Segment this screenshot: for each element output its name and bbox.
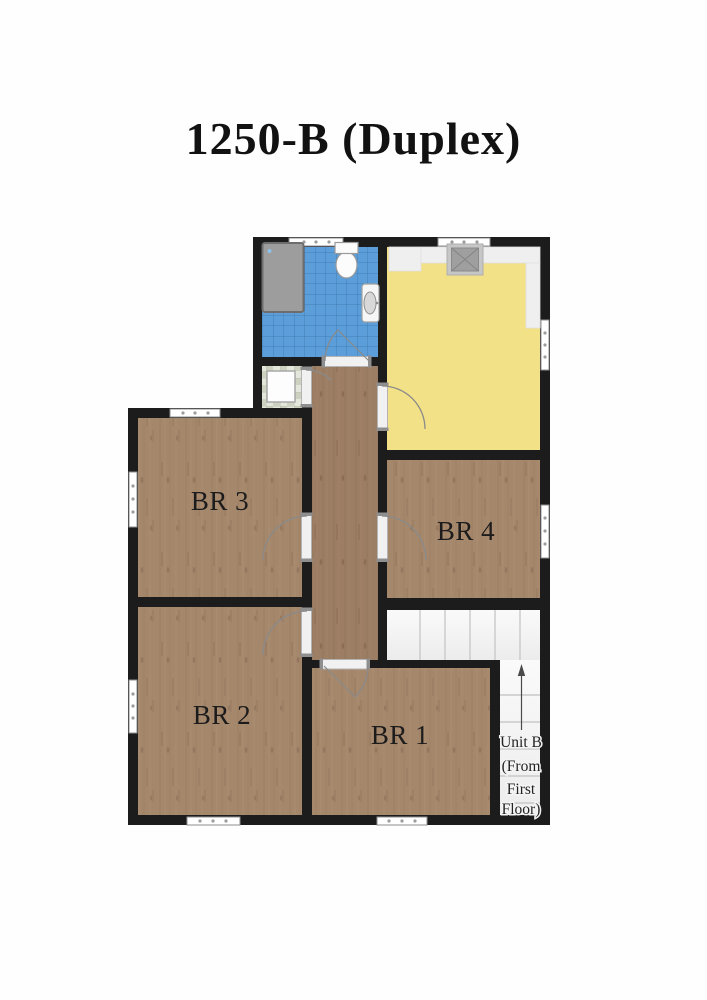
window-br1-bottom (377, 817, 427, 825)
wall-br4-bottom (378, 598, 550, 610)
window-br3-top (170, 409, 220, 417)
window-br3-left (129, 472, 137, 527)
stairs-note-line-4: Floor) (502, 801, 541, 818)
wall-hall-left (302, 366, 312, 815)
counter-left (389, 247, 421, 271)
stairs-note-line-1: Unit B (500, 734, 542, 751)
stairs-note-line-2: (From (502, 758, 541, 775)
washer (267, 371, 295, 402)
hallway-floor (312, 366, 378, 660)
window-br4-right (541, 505, 549, 558)
br3-label: BR 3 (191, 486, 249, 516)
wall-upper-left (253, 237, 262, 418)
br2-label: BR 2 (193, 700, 251, 730)
br4-label: BR 4 (437, 516, 495, 546)
br1-label: BR 1 (371, 720, 429, 750)
wall-br1-right (490, 660, 500, 825)
toilet (335, 243, 358, 279)
wall-kitchen-bottom (378, 450, 550, 460)
stairs-upper-run (387, 610, 540, 660)
counter-right (526, 263, 540, 328)
kitchen-sink (447, 244, 483, 275)
page: 1250-B (Duplex) (0, 0, 707, 1000)
wall-br3-br2 (128, 597, 312, 607)
floor-plan: Unit B (From First Floor) BR 3 BR 4 BR 2… (0, 0, 707, 1000)
window-kitchen-right (541, 320, 549, 370)
window-br2-left (129, 680, 137, 733)
kitchen-floor (387, 247, 540, 450)
stairs-note-line-3: First (507, 781, 536, 798)
window-br2-bottom (187, 817, 240, 825)
wall-left (128, 408, 138, 825)
bathtub (263, 243, 304, 312)
bathroom-sink (362, 284, 379, 322)
